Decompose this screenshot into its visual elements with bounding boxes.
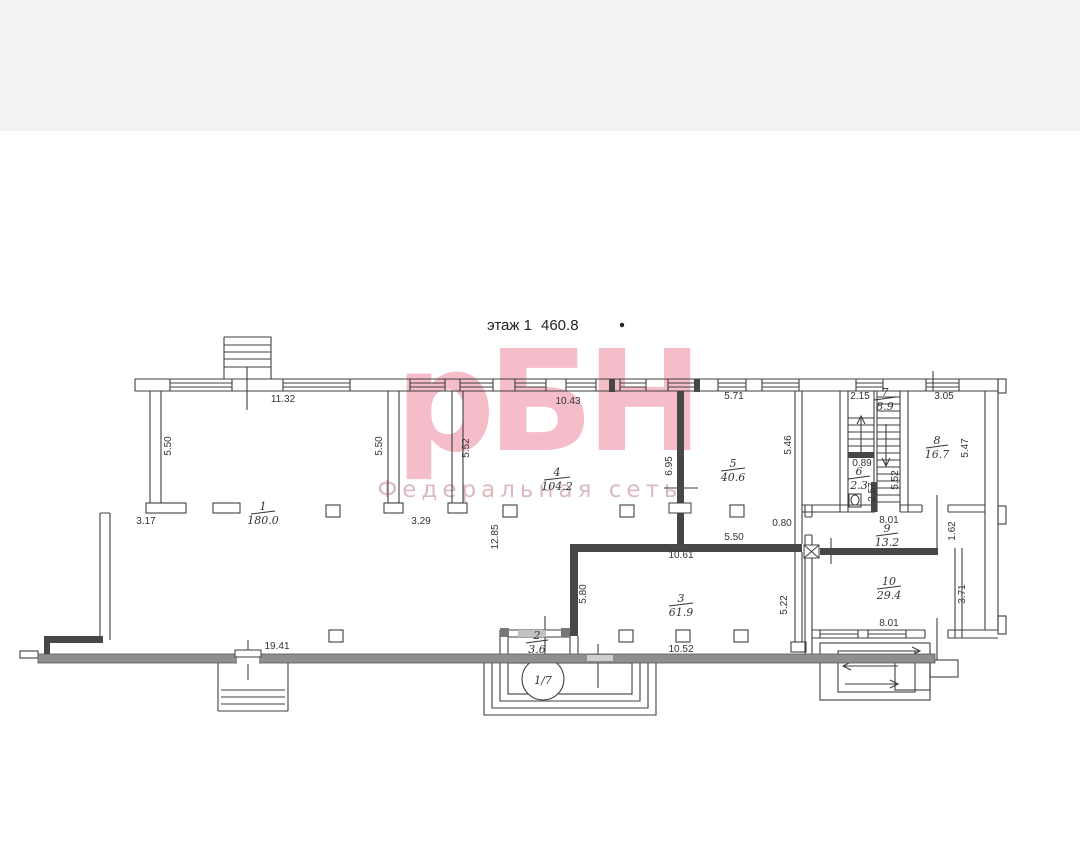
- room-label-8: 8 16.7: [925, 434, 950, 461]
- tambour-door: [518, 630, 546, 637]
- title-area: 460.8: [541, 317, 579, 334]
- dim-room4-left: 5.52: [461, 438, 472, 458]
- title-floor: этаж 1: [487, 317, 532, 334]
- entrance-axis-label: 1/7: [534, 674, 552, 687]
- svg-text:29.4: 29.4: [876, 589, 902, 602]
- dim-mid-height: 12.85: [490, 524, 501, 549]
- bottom-wall-group: [38, 630, 935, 664]
- wall-4-5-divider: [677, 391, 684, 546]
- pilaster: [998, 506, 1006, 524]
- watermark: рБН Федеральная сеть: [378, 321, 696, 503]
- floorplan-image: рБН Федеральная сеть: [0, 0, 1080, 847]
- svg-text:2.3: 2.3: [849, 479, 868, 492]
- room-label-10: 10 29.4: [876, 575, 902, 602]
- top-wall-door-mark: [609, 379, 615, 392]
- wall-foot: [146, 503, 186, 513]
- dim-room1-right: 5.50: [374, 436, 385, 456]
- dim-door-room9: 0.80: [772, 518, 792, 529]
- top-wall-door-mark: [694, 379, 700, 392]
- room10-bottom-wall: [812, 630, 998, 638]
- room-label-7: 7 8.9: [874, 386, 896, 413]
- wall-foot: [384, 503, 403, 513]
- watermark-subtitle: Федеральная сеть: [378, 477, 683, 503]
- wall-end: [20, 651, 38, 658]
- wall-foot: [448, 503, 467, 513]
- room5-right-wall: [795, 391, 802, 544]
- pilaster: [998, 379, 1006, 393]
- dim-wc-depth: 2.57: [867, 482, 878, 502]
- title-dot: [620, 323, 624, 327]
- svg-text:6: 6: [856, 465, 863, 478]
- svg-text:1: 1: [260, 500, 267, 513]
- room-label-9: 9 13.2: [875, 522, 900, 549]
- dim-room1-left: 5.50: [163, 436, 174, 456]
- svg-text:104.2: 104.2: [541, 480, 573, 493]
- dim-room3-top: 10.61: [668, 550, 693, 561]
- room9-10-divider-wall: [820, 548, 938, 555]
- room-label-3: 3 61.9: [669, 592, 694, 619]
- dim-room9-right: 1.62: [947, 521, 958, 541]
- dim-room10-right: 3.71: [957, 584, 968, 604]
- dim-stair-top: 2.15: [850, 391, 870, 402]
- watermark-logo: рБН: [395, 321, 695, 484]
- svg-text:8.9: 8.9: [876, 400, 894, 413]
- stair-up-arrow: [857, 416, 865, 452]
- bottom-door-leaf: [235, 650, 261, 657]
- svg-text:4: 4: [553, 466, 561, 479]
- side-steps: [218, 663, 288, 711]
- left-outer-wall: [100, 513, 110, 640]
- svg-text:8: 8: [934, 434, 941, 447]
- entrance-porch: [484, 658, 656, 715]
- room3-right-wall: [795, 552, 802, 642]
- dim-room3-right: 5.22: [779, 595, 790, 615]
- mid-wall: [802, 505, 985, 512]
- dim-room4-top: 10.43: [555, 396, 580, 407]
- svg-text:16.7: 16.7: [925, 448, 950, 461]
- room1-left-wall: [150, 391, 161, 503]
- dim-room5-top: 5.71: [724, 391, 744, 402]
- room9-left-wall: [805, 505, 812, 655]
- stair-down-arrow: [882, 424, 890, 466]
- room-label-1: 1 180.0: [247, 500, 279, 527]
- dim-divider: 6.95: [664, 456, 675, 476]
- top-porch-steps: [224, 337, 271, 410]
- dim-room1-top: 11.32: [271, 394, 296, 405]
- tambour-post: [561, 628, 570, 637]
- wall-foot: [213, 503, 240, 513]
- room3-left-wall: [570, 544, 578, 636]
- dim-left-offset: 3.17: [136, 516, 156, 527]
- svg-text:3.6: 3.6: [528, 643, 546, 656]
- wall-foot: [791, 642, 806, 652]
- dim-room3-left: 5.80: [578, 584, 589, 604]
- entrance-door: [587, 655, 613, 661]
- dim-room10-bottom: 8.01: [879, 618, 899, 629]
- dim-room5-right: 5.46: [783, 435, 794, 455]
- svg-text:9: 9: [884, 522, 891, 535]
- svg-text:40.6: 40.6: [720, 471, 746, 484]
- room-label-6: 6 2.3: [848, 465, 870, 492]
- pilaster: [998, 616, 1006, 634]
- svg-text:2: 2: [533, 629, 541, 642]
- dim-room8-right: 5.47: [960, 438, 971, 458]
- dock-arrow-right: [845, 680, 898, 688]
- floorplan-page: рБН Федеральная сеть: [0, 0, 1080, 847]
- dim-bottom-left: 19.41: [264, 641, 289, 652]
- columns: [326, 505, 748, 642]
- svg-text:180.0: 180.0: [247, 514, 279, 527]
- dim-room8-top: 3.05: [934, 391, 954, 402]
- dim-room5-bottom: 5.50: [724, 532, 744, 543]
- stair-right-wall: [900, 391, 908, 512]
- stair-left-wall: [840, 391, 848, 512]
- svg-text:61.9: 61.9: [669, 606, 694, 619]
- left-hatched-wall: [44, 636, 103, 643]
- svg-text:3: 3: [678, 592, 685, 605]
- toilet-icon: [851, 495, 859, 505]
- right-outer-wall: [985, 391, 998, 630]
- tambour-post: [500, 628, 509, 637]
- dim-stair-right: 5.52: [890, 470, 901, 490]
- svg-text:13.2: 13.2: [875, 536, 900, 549]
- svg-text:7: 7: [882, 386, 889, 399]
- bottom-wall: [38, 654, 935, 663]
- dim-room1-bottom: 3.29: [411, 516, 431, 527]
- room-label-5: 5 40.6: [720, 457, 746, 484]
- svg-text:5: 5: [730, 457, 737, 470]
- left-hatched-wall: [44, 636, 50, 655]
- svg-text:10: 10: [882, 575, 896, 588]
- dim-room3-bottom: 10.52: [668, 644, 693, 655]
- wall-foot: [669, 503, 691, 513]
